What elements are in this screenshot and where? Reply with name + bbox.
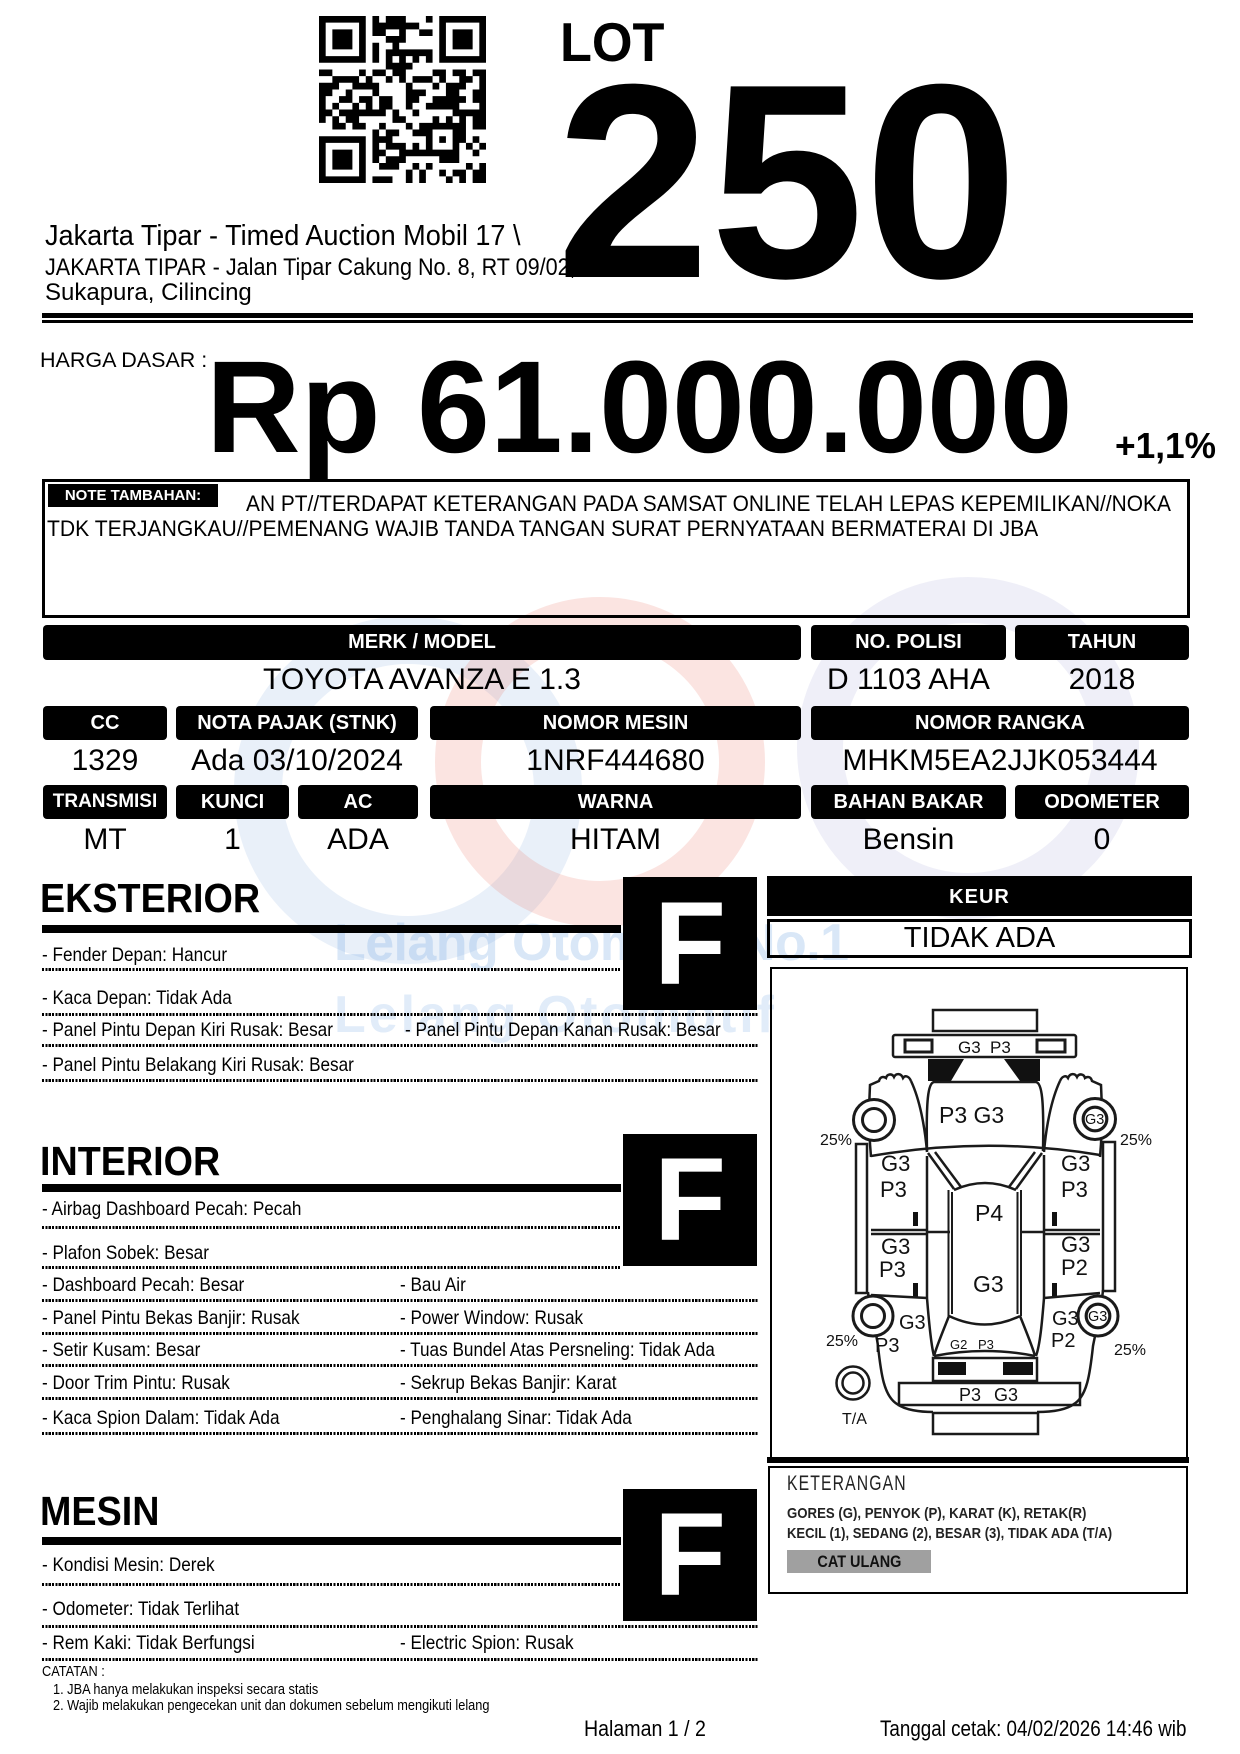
svg-text:25%: 25%: [826, 1333, 858, 1350]
svg-text:P3: P3: [990, 1038, 1011, 1057]
svg-text:25%: 25%: [1114, 1342, 1146, 1359]
svg-text:P3: P3: [880, 1177, 907, 1202]
svg-text:G3: G3: [1088, 1309, 1107, 1325]
svg-text:P3: P3: [978, 1337, 994, 1352]
svg-text:T/A: T/A: [842, 1411, 867, 1428]
svg-text:G3: G3: [994, 1385, 1018, 1405]
svg-text:G3: G3: [1061, 1151, 1090, 1176]
svg-text:P4: P4: [975, 1200, 1003, 1226]
svg-text:G3: G3: [1085, 1112, 1104, 1128]
svg-text:G2: G2: [950, 1337, 967, 1352]
svg-text:G3: G3: [973, 1271, 1004, 1297]
svg-text:G3: G3: [958, 1038, 981, 1057]
svg-text:P3 G3: P3 G3: [939, 1102, 1004, 1128]
svg-text:P2: P2: [1051, 1330, 1075, 1352]
svg-text:G3: G3: [1052, 1308, 1079, 1330]
svg-text:P3: P3: [1061, 1177, 1088, 1202]
svg-text:P3: P3: [879, 1257, 906, 1282]
svg-text:G3: G3: [881, 1234, 910, 1259]
svg-text:P2: P2: [1061, 1255, 1088, 1280]
svg-text:25%: 25%: [1120, 1132, 1152, 1149]
svg-text:G3: G3: [881, 1151, 910, 1176]
svg-text:G3: G3: [1061, 1232, 1090, 1257]
svg-text:G3: G3: [899, 1312, 926, 1334]
svg-text:P3: P3: [959, 1385, 981, 1405]
svg-text:P3: P3: [875, 1335, 899, 1357]
svg-text:25%: 25%: [820, 1132, 852, 1149]
